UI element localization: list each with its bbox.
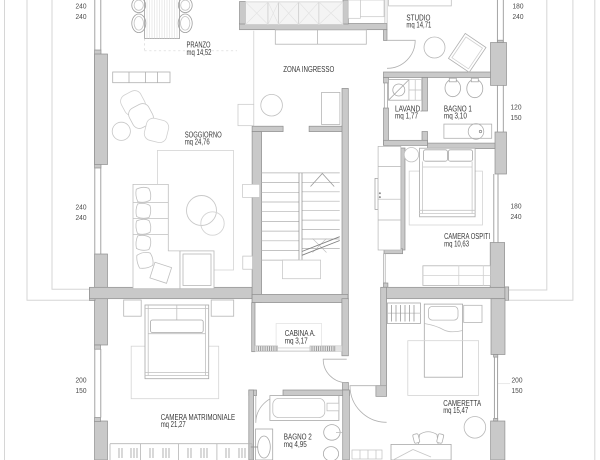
svg-text:mq 3,10: mq 3,10: [444, 112, 467, 121]
svg-text:180: 180: [511, 202, 522, 211]
svg-text:240: 240: [76, 213, 87, 222]
svg-text:mq 15,47: mq 15,47: [443, 406, 468, 415]
svg-text:mq 4,95: mq 4,95: [284, 440, 307, 449]
svg-text:240: 240: [76, 2, 87, 11]
svg-text:240: 240: [76, 12, 87, 21]
svg-text:180: 180: [513, 2, 524, 11]
svg-text:120: 120: [511, 103, 522, 112]
svg-text:mq 1,77: mq 1,77: [395, 112, 418, 121]
svg-text:150: 150: [511, 113, 522, 122]
svg-text:mq 10,63: mq 10,63: [444, 239, 469, 248]
svg-text:200: 200: [512, 376, 523, 385]
svg-text:240: 240: [511, 212, 522, 221]
svg-text:mq 14,71: mq 14,71: [406, 21, 431, 30]
svg-text:240: 240: [76, 203, 87, 212]
svg-text:200: 200: [76, 376, 87, 385]
svg-text:240: 240: [513, 12, 524, 21]
svg-text:ZONA INGRESSO: ZONA INGRESSO: [283, 65, 334, 74]
svg-text:150: 150: [76, 386, 87, 395]
svg-text:mq 14,52: mq 14,52: [187, 48, 212, 57]
svg-text:mq 24,76: mq 24,76: [185, 138, 210, 147]
svg-text:150: 150: [512, 386, 523, 395]
svg-text:mq 21,27: mq 21,27: [161, 420, 186, 429]
svg-text:mq 3,17: mq 3,17: [285, 336, 308, 345]
